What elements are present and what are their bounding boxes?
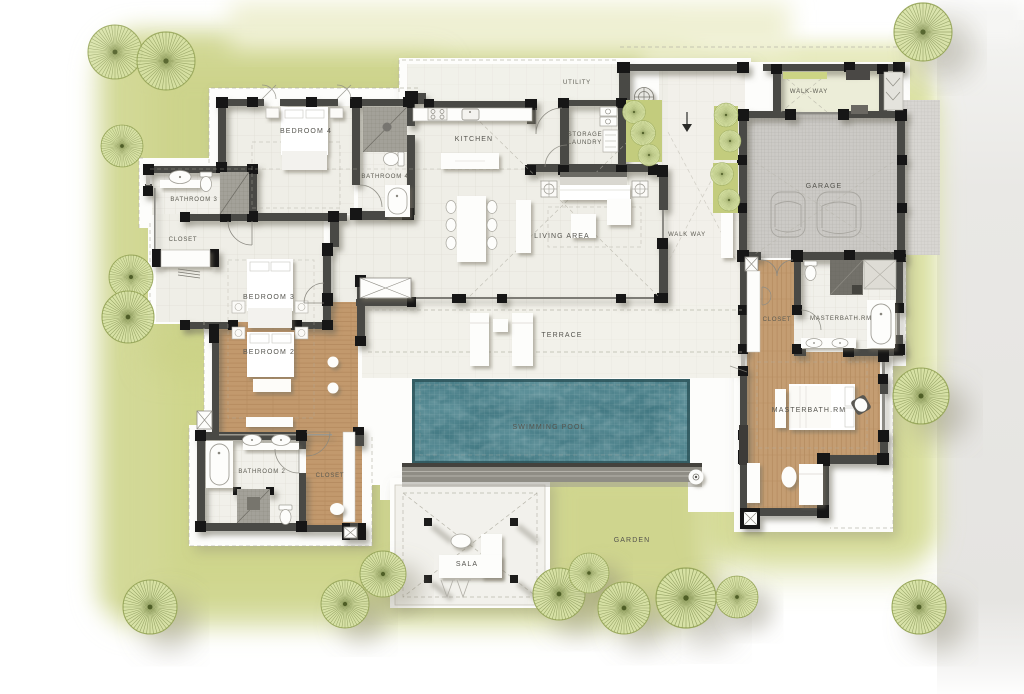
svg-text:BEDROOM 3: BEDROOM 3 (243, 294, 295, 301)
svg-text:SALA: SALA (456, 561, 478, 568)
svg-text:WALK-WAY: WALK-WAY (790, 89, 828, 95)
svg-text:STORAGE: STORAGE (568, 132, 603, 138)
svg-text:SWIMMING POOL: SWIMMING POOL (512, 424, 585, 431)
svg-text:BATHROOM 2: BATHROOM 2 (238, 469, 285, 475)
svg-text:TERRACE: TERRACE (541, 332, 582, 339)
svg-text:KITCHEN: KITCHEN (455, 136, 493, 143)
svg-text:WALK WAY: WALK WAY (668, 232, 706, 238)
svg-text:LIVING AREA: LIVING AREA (534, 233, 590, 240)
svg-text:BEDROOM 2: BEDROOM 2 (243, 349, 295, 356)
svg-text:BATHROOM 3: BATHROOM 3 (170, 197, 217, 203)
svg-text:GARAGE: GARAGE (806, 183, 843, 190)
svg-text:CLOSET: CLOSET (763, 317, 792, 323)
svg-text:BATHROOM 4: BATHROOM 4 (361, 174, 408, 180)
svg-text:LAUNDRY: LAUNDRY (568, 140, 602, 146)
svg-text:BEDROOM 4: BEDROOM 4 (280, 128, 332, 135)
svg-text:GARDEN: GARDEN (614, 537, 651, 544)
svg-text:MASTERBATH.RM: MASTERBATH.RM (772, 407, 846, 414)
svg-text:UTILITY: UTILITY (563, 80, 591, 86)
svg-text:MASTERBATH.RM: MASTERBATH.RM (810, 316, 872, 322)
svg-text:CLOSET: CLOSET (316, 473, 345, 479)
svg-text:CLOSET: CLOSET (169, 237, 198, 243)
